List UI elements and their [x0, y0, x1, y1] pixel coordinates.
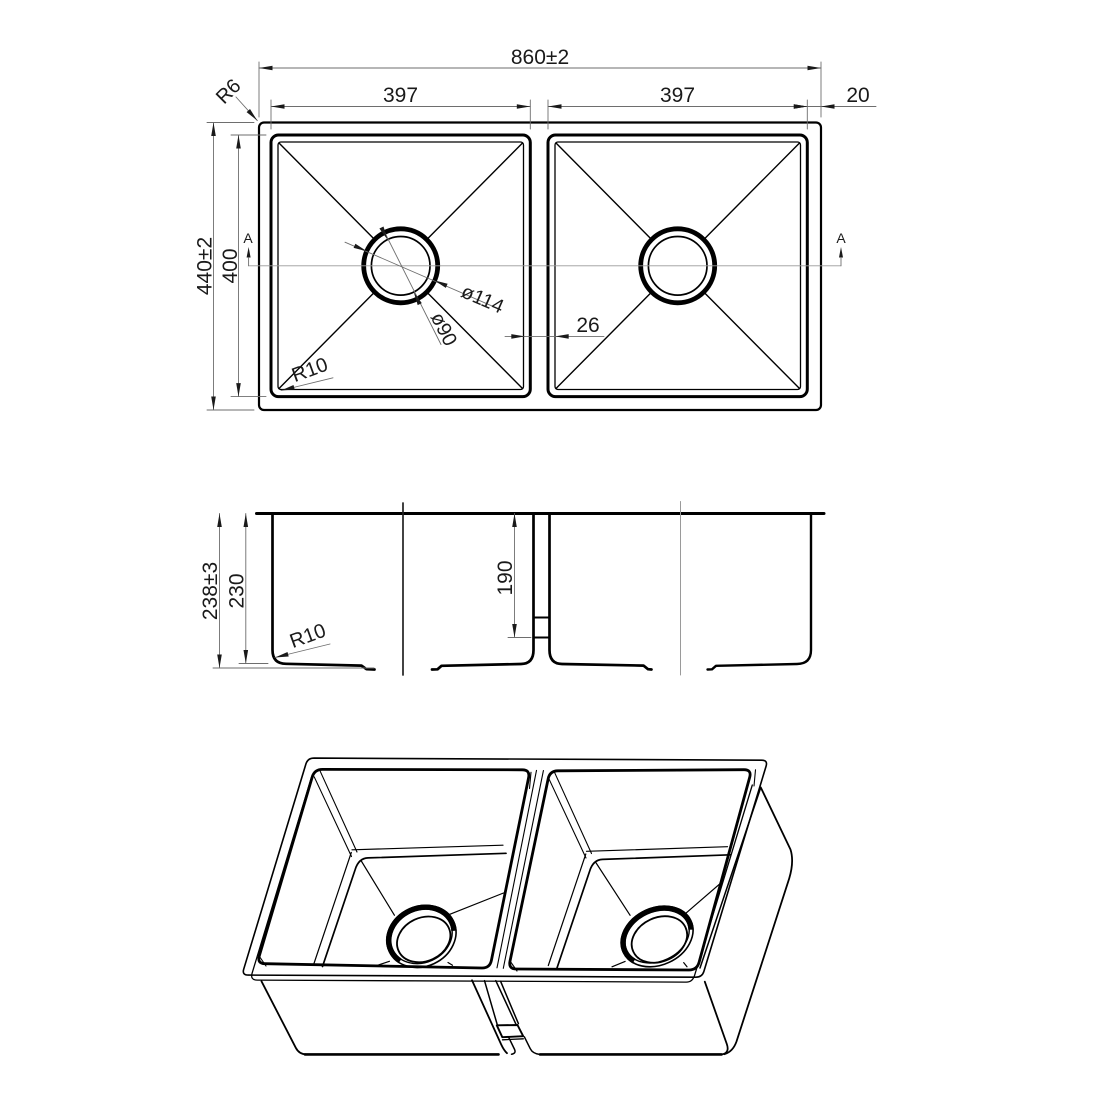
svg-text:238±3: 238±3 — [199, 562, 222, 620]
svg-text:397: 397 — [383, 84, 418, 107]
svg-text:230: 230 — [226, 573, 249, 608]
svg-text:400: 400 — [219, 248, 242, 283]
svg-text:20: 20 — [846, 84, 869, 107]
svg-text:A: A — [836, 230, 846, 246]
svg-text:397: 397 — [660, 84, 695, 107]
svg-text:A: A — [243, 230, 253, 246]
svg-text:190: 190 — [494, 560, 517, 595]
svg-text:440±2: 440±2 — [194, 237, 217, 295]
svg-text:860±2: 860±2 — [511, 46, 569, 69]
svg-text:26: 26 — [576, 314, 599, 337]
